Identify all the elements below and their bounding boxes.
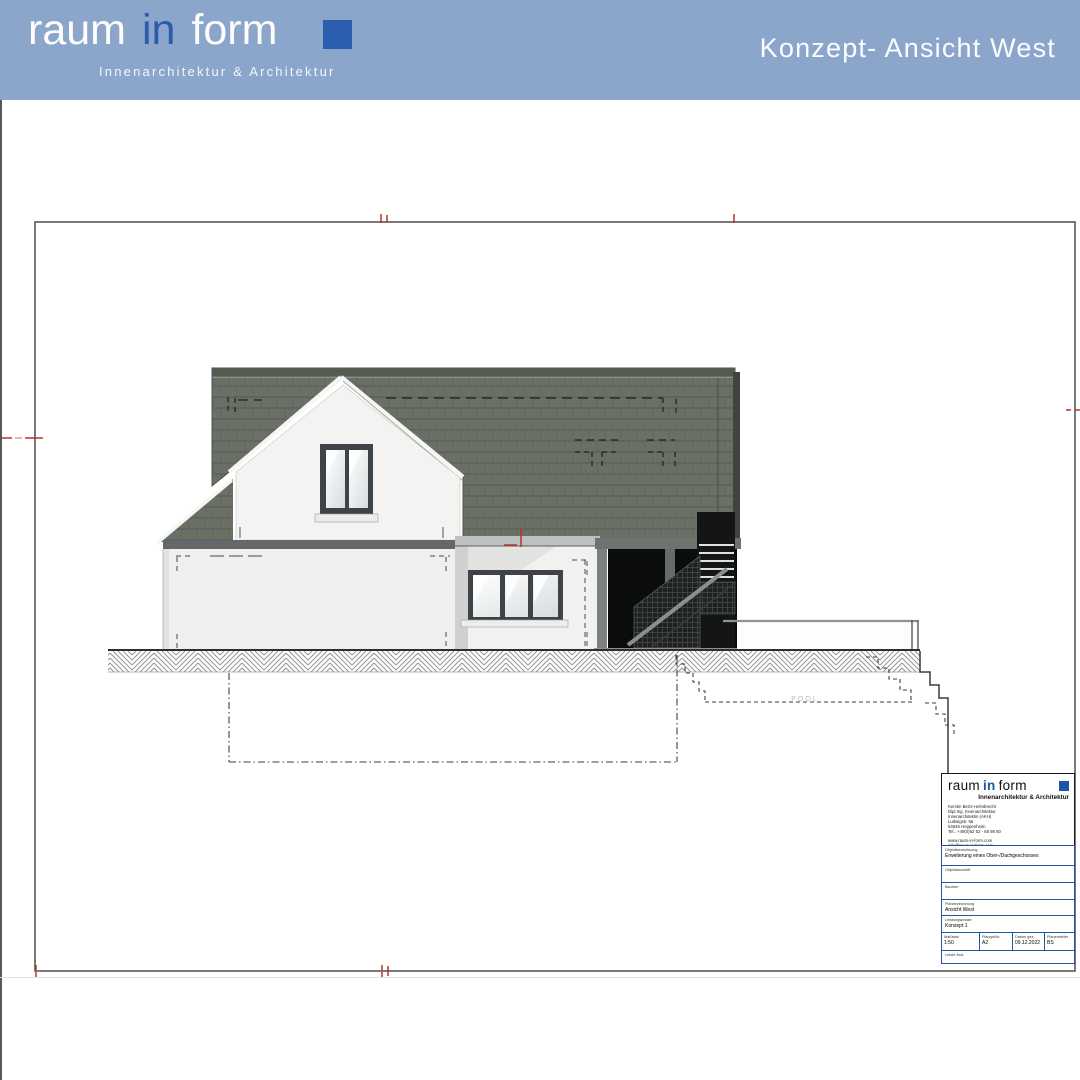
- field-plangroesse-value: A2: [982, 940, 1012, 946]
- field-phase-label: Leistungsphase: [945, 918, 1074, 922]
- field-datum-label: Datum gez.: [1015, 935, 1044, 939]
- field-plan-label: Planbezeichnung: [945, 902, 1074, 906]
- field-massstab-label: Maßstab: [944, 935, 979, 939]
- field-letzte: Letzte Änd.: [942, 951, 1074, 963]
- terrain-steps: [920, 651, 948, 775]
- tb-brand-tagline: Innenarchitektur & Architektur: [942, 794, 1074, 801]
- triple-window: [461, 570, 568, 627]
- tb-brand-square-icon: [1059, 781, 1069, 791]
- field-massstab-value: 1:50: [944, 940, 979, 946]
- field-phase-value: Konzept 1: [945, 923, 1074, 929]
- field-meta-row: Maßstab 1:50 Plangröße A2 Datum gez. 09.…: [942, 933, 1074, 951]
- field-objekt-value: Erweiterung eines Ober-/Dachgeschosses: [945, 853, 1074, 859]
- dormer-window-sill: [315, 514, 378, 522]
- field-massstab: Maßstab 1:50: [942, 933, 979, 950]
- field-plan-value: Ansicht West: [945, 907, 1074, 913]
- field-anschrift: Objektanschrift: [942, 866, 1074, 883]
- field-bauherr: Bauherr: [942, 883, 1074, 900]
- tb-contact-block: Kerstin Bertz-Helmbrecht Dipl.Ing. Innen…: [942, 801, 1074, 835]
- field-datum: Datum gez. 09.12.2022: [1012, 933, 1044, 950]
- field-anschrift-label: Objektanschrift: [945, 868, 1074, 872]
- tb-brand-in: in: [983, 778, 996, 793]
- ridge-cap: [212, 368, 735, 376]
- titleblock-logo: rauminform: [942, 774, 1074, 793]
- field-ersteller-value: BS: [1047, 940, 1074, 946]
- tb-fields: Objektbezeichnung Erweiterung eines Ober…: [941, 845, 1075, 964]
- field-datum-value: 09.12.2022: [1015, 940, 1044, 946]
- pool-label: POOL: [791, 696, 818, 703]
- hidden-terrain-steps: [925, 703, 954, 736]
- field-objekt-label: Objektbezeichnung: [945, 848, 1074, 852]
- field-letzte-label: Letzte Änd.: [945, 953, 1074, 957]
- tb-brand-raum: raum: [948, 778, 980, 793]
- stair-tower: [697, 512, 735, 650]
- elevation-drawing: POOL: [0, 0, 1080, 1080]
- field-plan: Planbezeichnung Ansicht West: [942, 900, 1074, 916]
- eave-gutter: [455, 536, 600, 546]
- tb-brand-form: form: [999, 778, 1027, 793]
- triple-window-sill: [461, 620, 568, 627]
- field-objekt: Objektbezeichnung Erweiterung eines Ober…: [942, 846, 1074, 866]
- field-ersteller: Planersteller BS: [1044, 933, 1074, 950]
- field-ersteller-label: Planersteller: [1047, 935, 1074, 939]
- dormer-window: [315, 444, 378, 522]
- ground: [108, 650, 948, 775]
- title-block: rauminform Innenarchitektur & Architektu…: [941, 773, 1075, 964]
- field-plangroesse-label: Plangröße: [982, 935, 1012, 939]
- right-wall-section: [455, 536, 600, 650]
- garage-fascia: [163, 540, 458, 549]
- terrace-wall: [723, 620, 918, 653]
- field-plangroesse: Plangröße A2: [979, 933, 1012, 950]
- field-bauherr-label: Bauherr: [945, 885, 1074, 889]
- carport-post-left: [597, 549, 607, 650]
- ground-hatch: [108, 651, 920, 672]
- house-elevation: POOL: [108, 368, 954, 775]
- garage: [163, 540, 458, 650]
- field-phase: Leistungsphase Konzept 1: [942, 916, 1074, 933]
